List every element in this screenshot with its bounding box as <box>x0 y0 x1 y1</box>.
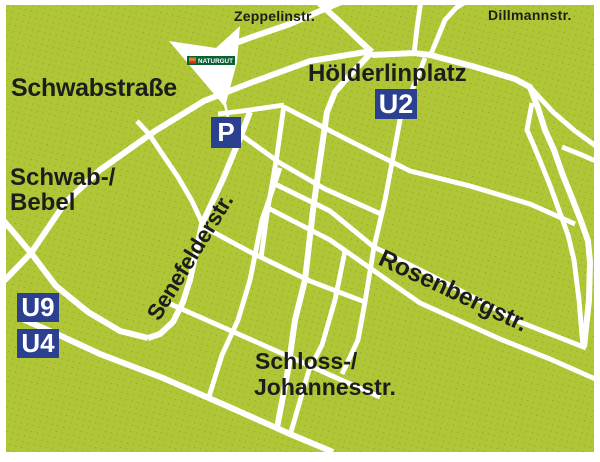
svg-text:U2: U2 <box>379 89 414 119</box>
svg-text:Bebel: Bebel <box>10 189 75 216</box>
svg-text:P: P <box>217 117 234 147</box>
svg-text:Zeppelinstr.: Zeppelinstr. <box>234 8 315 24</box>
svg-text:Schwabstraße: Schwabstraße <box>11 74 177 102</box>
svg-text:U9: U9 <box>21 292 54 322</box>
svg-text:Dillmannstr.: Dillmannstr. <box>488 7 572 23</box>
svg-text:Johannesstr.: Johannesstr. <box>254 374 396 400</box>
svg-text:Schloss-/: Schloss-/ <box>255 348 358 374</box>
svg-text:U4: U4 <box>21 328 55 358</box>
svg-text:Hölderlinplatz: Hölderlinplatz <box>308 60 467 87</box>
svg-text:Schwab-/: Schwab-/ <box>10 164 116 191</box>
svg-text:NATURGUT: NATURGUT <box>198 58 233 65</box>
